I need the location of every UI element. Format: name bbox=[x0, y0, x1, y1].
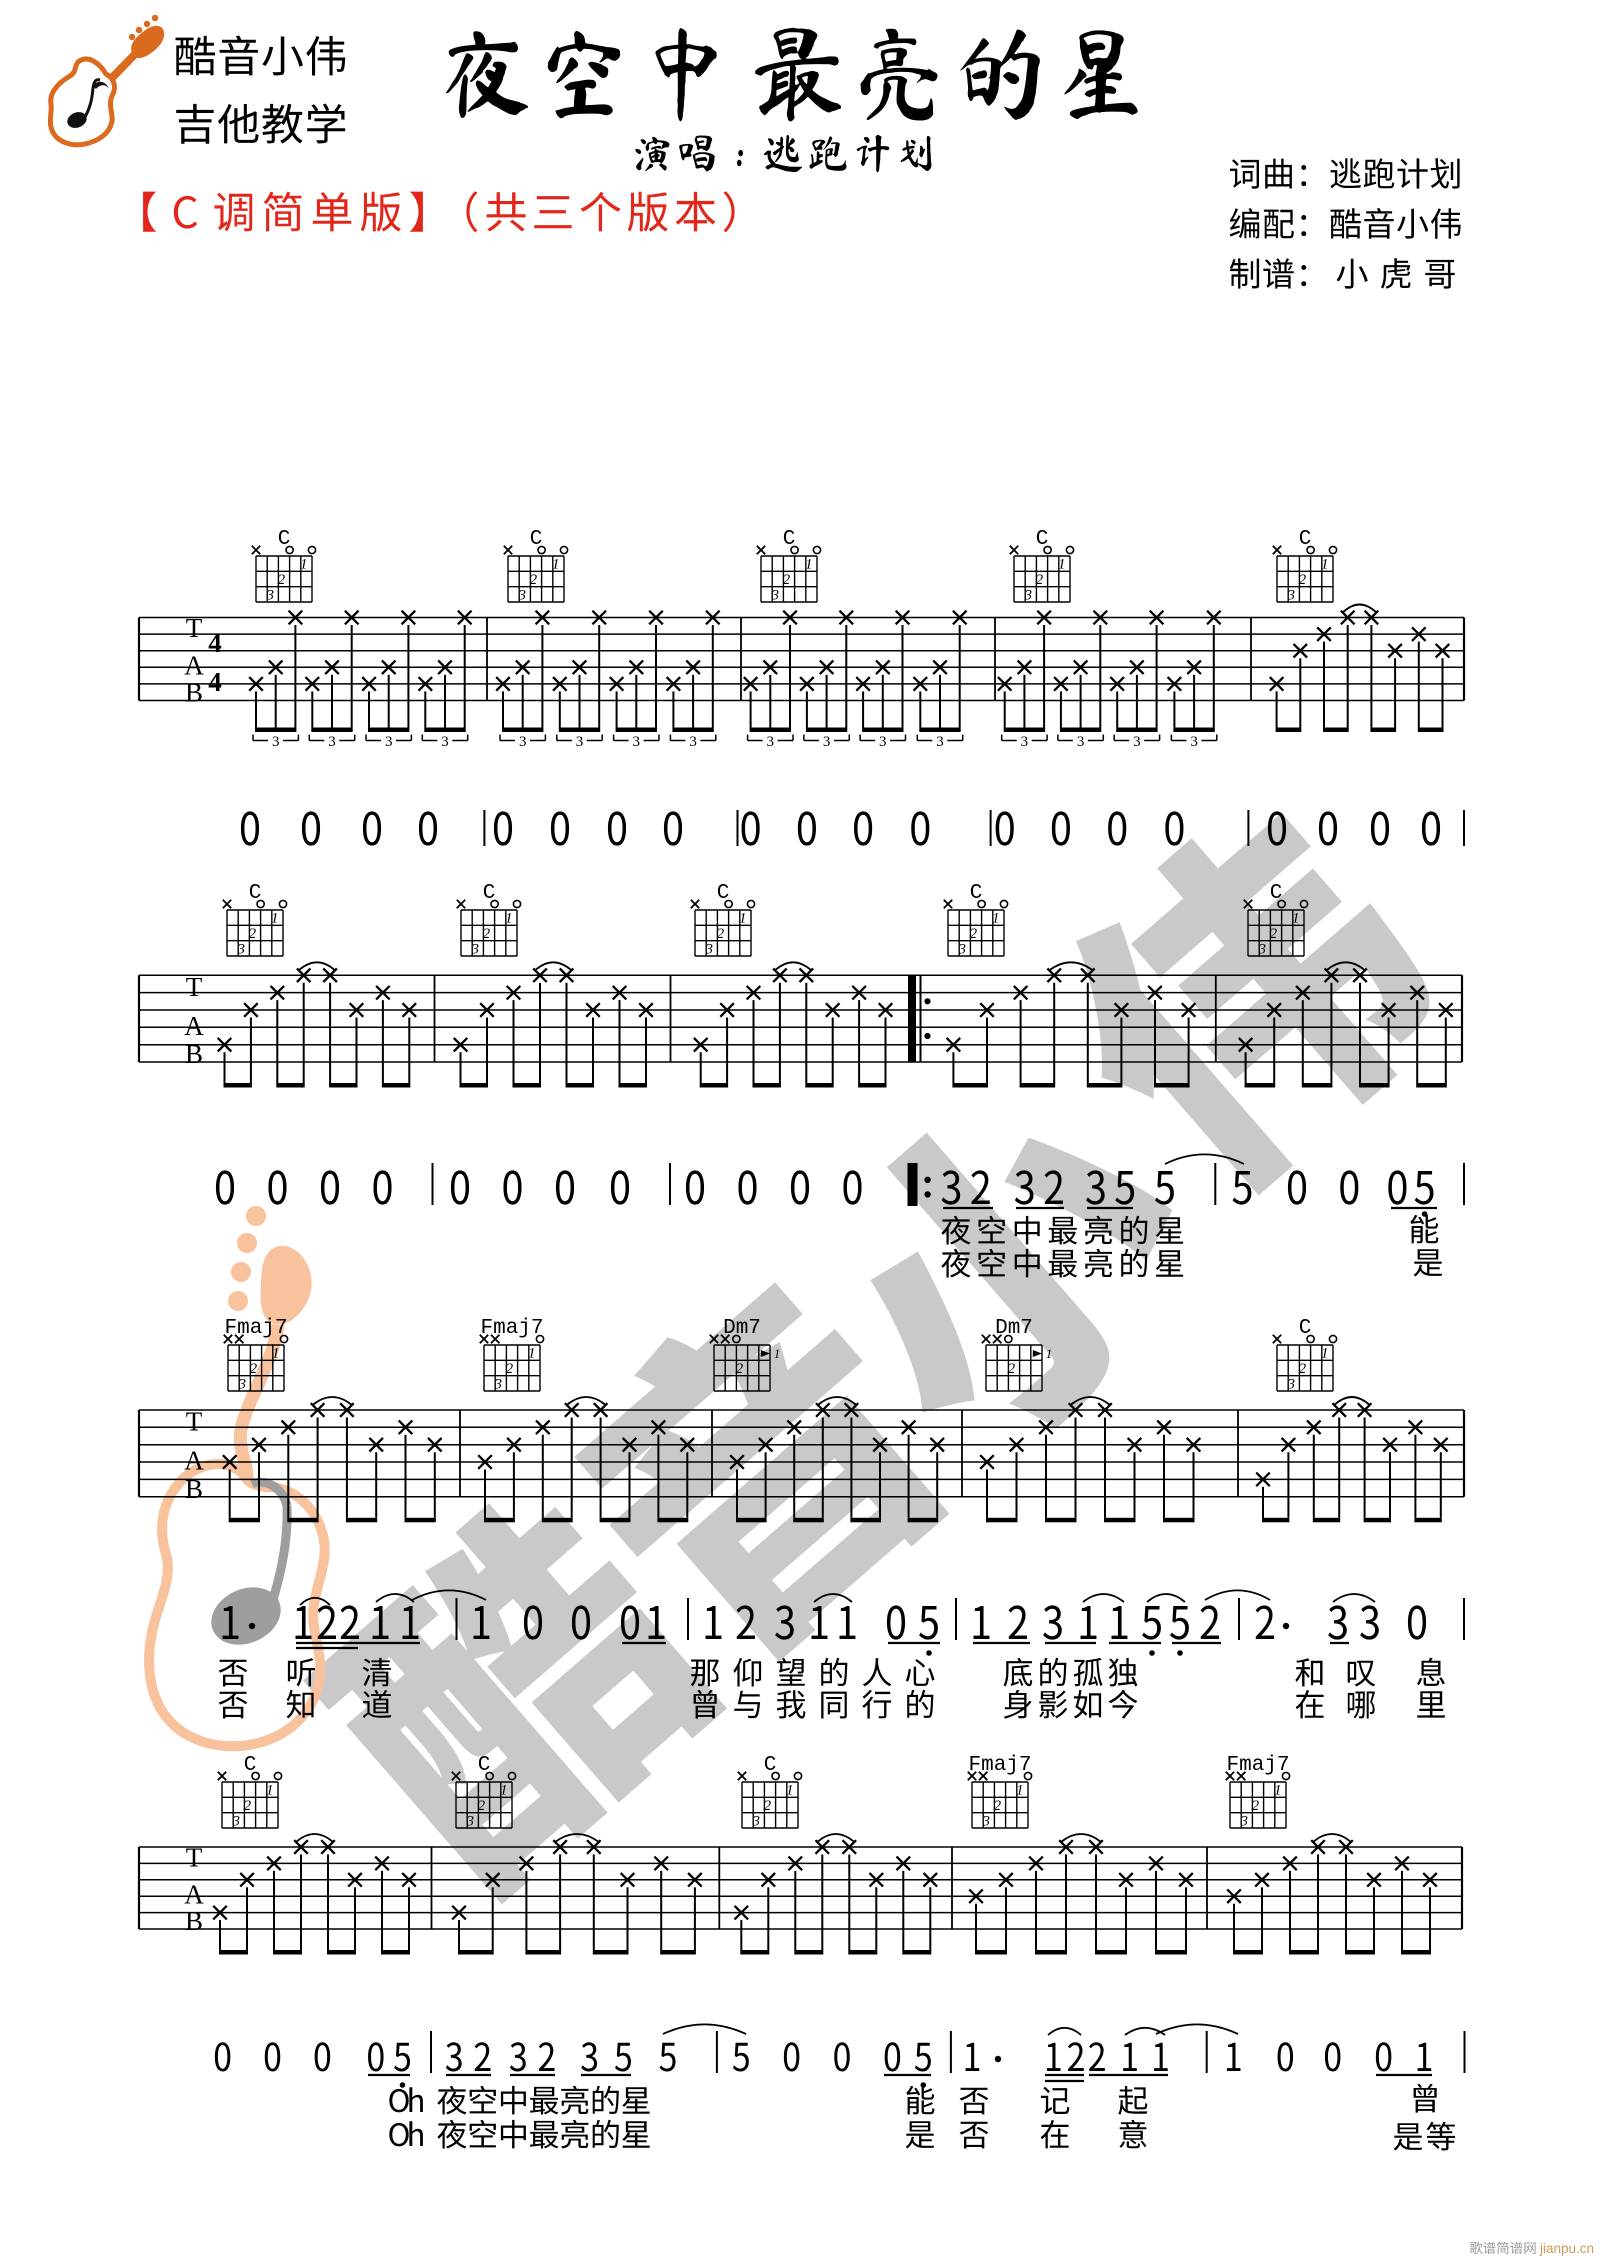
svg-text:A: A bbox=[184, 1446, 204, 1476]
svg-text:C: C bbox=[278, 528, 291, 551]
svg-text:2: 2 bbox=[1036, 572, 1044, 588]
svg-text:B: B bbox=[185, 678, 203, 708]
svg-text:Fmaj7: Fmaj7 bbox=[224, 1317, 287, 1340]
svg-text:Fmaj7: Fmaj7 bbox=[480, 1317, 543, 1340]
svg-text:C: C bbox=[717, 882, 730, 905]
svg-text:1: 1 bbox=[739, 911, 747, 927]
svg-text:3: 3 bbox=[519, 734, 527, 750]
svg-text:1: 1 bbox=[505, 911, 513, 927]
svg-text:C: C bbox=[483, 882, 496, 905]
svg-text:T: T bbox=[186, 613, 203, 643]
svg-text:3: 3 bbox=[767, 734, 775, 750]
svg-text:T: T bbox=[186, 1842, 203, 1872]
svg-text:3: 3 bbox=[1286, 588, 1295, 604]
svg-text:C: C bbox=[764, 1754, 777, 1777]
svg-text:3: 3 bbox=[576, 734, 584, 750]
svg-text:2: 2 bbox=[1299, 1361, 1307, 1377]
svg-text:1: 1 bbox=[271, 911, 279, 927]
svg-text:1: 1 bbox=[1016, 1783, 1024, 1799]
svg-text:2: 2 bbox=[736, 1361, 744, 1377]
svg-text:3: 3 bbox=[517, 588, 526, 604]
svg-text:2: 2 bbox=[764, 1798, 772, 1814]
svg-text:3: 3 bbox=[981, 1814, 990, 1830]
svg-text:C: C bbox=[249, 882, 262, 905]
svg-text:4: 4 bbox=[208, 667, 222, 697]
svg-text:2: 2 bbox=[1008, 1361, 1016, 1377]
svg-text:3: 3 bbox=[1023, 588, 1032, 604]
svg-text:3: 3 bbox=[465, 1814, 474, 1830]
svg-text:1: 1 bbox=[1046, 1346, 1053, 1361]
svg-text:3: 3 bbox=[633, 734, 641, 750]
svg-text:2: 2 bbox=[1252, 1798, 1260, 1814]
svg-text:1: 1 bbox=[774, 1346, 781, 1361]
svg-text:1: 1 bbox=[272, 1346, 280, 1362]
svg-text:3: 3 bbox=[751, 1814, 760, 1830]
svg-text:3: 3 bbox=[936, 734, 944, 750]
svg-text:3: 3 bbox=[272, 734, 280, 750]
svg-text:T: T bbox=[186, 972, 203, 1002]
svg-text:2: 2 bbox=[278, 572, 286, 588]
svg-text:1: 1 bbox=[552, 557, 560, 573]
svg-text:1: 1 bbox=[1292, 911, 1300, 927]
svg-text:2: 2 bbox=[1270, 926, 1278, 942]
svg-text:T: T bbox=[186, 1407, 203, 1437]
svg-text:3: 3 bbox=[770, 588, 779, 604]
svg-text:3: 3 bbox=[493, 1377, 502, 1393]
svg-text:jianpu.cn: jianpu.cn bbox=[1539, 2241, 1594, 2256]
svg-text:3: 3 bbox=[1077, 734, 1085, 750]
svg-text:1: 1 bbox=[805, 557, 813, 573]
svg-text:2: 2 bbox=[506, 1361, 514, 1377]
svg-text:2: 2 bbox=[478, 1798, 486, 1814]
svg-text:1: 1 bbox=[1058, 557, 1066, 573]
svg-text:B: B bbox=[185, 1906, 203, 1936]
svg-text:2: 2 bbox=[970, 926, 978, 942]
svg-text:2: 2 bbox=[244, 1798, 252, 1814]
svg-text:1: 1 bbox=[1321, 1346, 1329, 1362]
svg-text:2: 2 bbox=[483, 926, 491, 942]
svg-text:2: 2 bbox=[1299, 572, 1307, 588]
svg-text:3: 3 bbox=[265, 588, 274, 604]
svg-text:3: 3 bbox=[237, 1377, 246, 1393]
svg-text:3: 3 bbox=[957, 942, 966, 958]
svg-text:C: C bbox=[1299, 1317, 1312, 1340]
svg-text:Fmaj7: Fmaj7 bbox=[1226, 1754, 1289, 1777]
svg-text:3: 3 bbox=[1257, 942, 1266, 958]
svg-text:B: B bbox=[185, 1474, 203, 1504]
svg-text:2: 2 bbox=[994, 1798, 1002, 1814]
svg-text:3: 3 bbox=[236, 942, 245, 958]
svg-text:3: 3 bbox=[1190, 734, 1198, 750]
svg-text:B: B bbox=[185, 1039, 203, 1069]
svg-text:2: 2 bbox=[717, 926, 725, 942]
svg-text:C: C bbox=[783, 528, 796, 551]
svg-text:C: C bbox=[1299, 528, 1312, 551]
svg-text:1: 1 bbox=[528, 1346, 536, 1362]
svg-text:3: 3 bbox=[1239, 1814, 1248, 1830]
svg-text:3: 3 bbox=[328, 734, 336, 750]
svg-text:C: C bbox=[530, 528, 543, 551]
svg-text:1: 1 bbox=[1321, 557, 1329, 573]
svg-text:3: 3 bbox=[689, 734, 697, 750]
svg-text:A: A bbox=[184, 651, 204, 681]
svg-text:2: 2 bbox=[250, 1361, 258, 1377]
svg-text:1: 1 bbox=[786, 1783, 794, 1799]
svg-text:C: C bbox=[478, 1754, 491, 1777]
svg-text:2: 2 bbox=[530, 572, 538, 588]
svg-text:2: 2 bbox=[249, 926, 257, 942]
svg-text:A: A bbox=[184, 1011, 204, 1041]
svg-text:4: 4 bbox=[208, 628, 222, 658]
svg-text:1: 1 bbox=[266, 1783, 274, 1799]
svg-text:C: C bbox=[970, 882, 983, 905]
svg-text:1: 1 bbox=[300, 557, 308, 573]
svg-text:3: 3 bbox=[1133, 734, 1141, 750]
svg-text:3: 3 bbox=[470, 942, 479, 958]
svg-text:2: 2 bbox=[783, 572, 791, 588]
svg-text:3: 3 bbox=[1021, 734, 1029, 750]
svg-text:3: 3 bbox=[441, 734, 449, 750]
svg-text:3: 3 bbox=[1286, 1377, 1295, 1393]
svg-text:3: 3 bbox=[231, 1814, 240, 1830]
svg-text:C: C bbox=[1036, 528, 1049, 551]
svg-text:3: 3 bbox=[385, 734, 393, 750]
svg-text:3: 3 bbox=[823, 734, 831, 750]
svg-text:1: 1 bbox=[992, 911, 1000, 927]
svg-text:C: C bbox=[1270, 882, 1283, 905]
svg-text:1: 1 bbox=[1274, 1783, 1282, 1799]
svg-text:A: A bbox=[184, 1879, 204, 1909]
svg-text:3: 3 bbox=[879, 734, 887, 750]
svg-text:1: 1 bbox=[500, 1783, 508, 1799]
svg-text:3: 3 bbox=[704, 942, 713, 958]
svg-text:Fmaj7: Fmaj7 bbox=[968, 1754, 1031, 1777]
svg-text:C: C bbox=[244, 1754, 257, 1777]
